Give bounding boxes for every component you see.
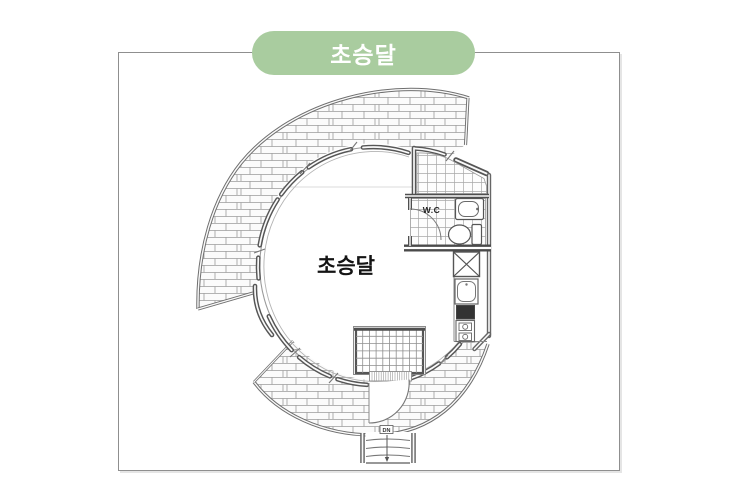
title-badge-label: 초승달 — [330, 36, 396, 70]
stove — [457, 306, 475, 320]
room-label: 초승달 — [317, 255, 375, 278]
stairs-threshold — [370, 372, 412, 382]
closet-x-box — [454, 252, 480, 277]
toilet — [449, 225, 482, 245]
title-badge: 초승달 — [252, 31, 475, 75]
kitchen-group — [454, 252, 488, 342]
wc-label: W.C — [423, 205, 441, 215]
burner-unit — [456, 321, 475, 342]
stair-direction-label: DN — [383, 428, 391, 434]
page: { "badge": { "label": "초승달", "background… — [0, 0, 740, 504]
kitchen-sink — [455, 279, 478, 304]
wc-sink — [456, 199, 484, 220]
floor-plan-card: W.C — [118, 52, 620, 471]
floor-plan-image: W.C — [193, 83, 513, 473]
bathroom-anteroom-floor — [417, 153, 487, 194]
